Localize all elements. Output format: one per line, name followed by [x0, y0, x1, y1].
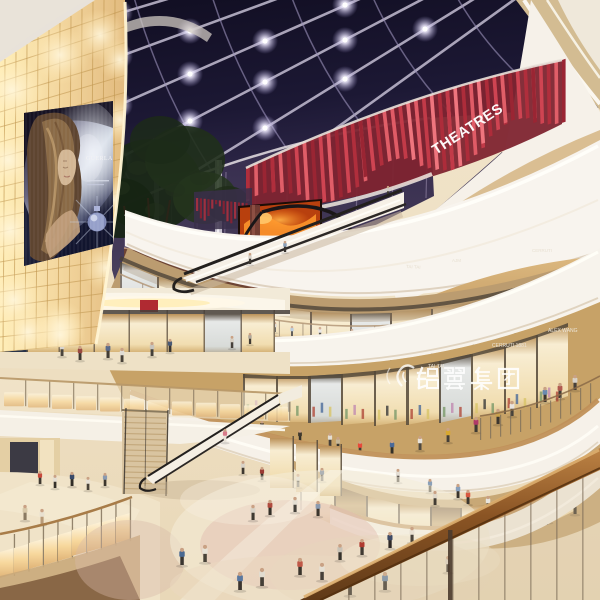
svg-text:ALEX WANG: ALEX WANG	[548, 328, 578, 334]
svg-text:AJM: AJM	[452, 258, 461, 263]
svg-text:TAI TAI: TAI TAI	[406, 264, 421, 270]
svg-text:CERRUTI 1881: CERRUTI 1881	[492, 343, 527, 349]
svg-text:CERRUTI: CERRUTI	[532, 248, 552, 253]
